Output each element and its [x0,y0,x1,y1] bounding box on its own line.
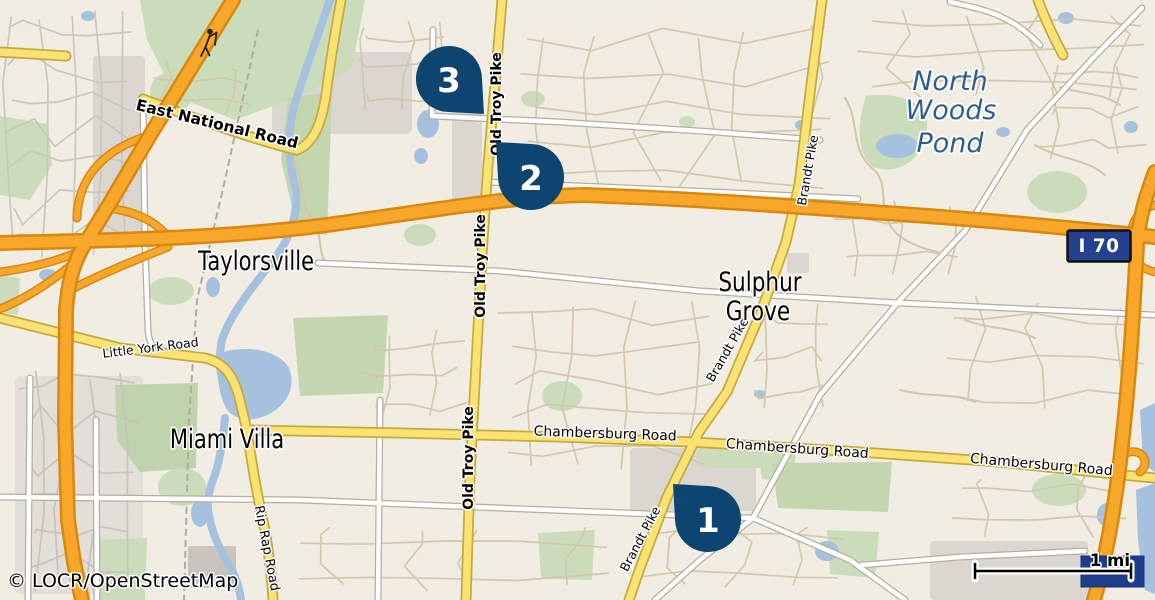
north-woods-pond-water [876,134,918,158]
map-canvas[interactable]: East National Road Old Troy Pike Old Tro… [0,0,1155,600]
place-label-grove: Grove [726,295,790,327]
water-label-pond: Pond [916,128,984,159]
road-label-old-troy-pike-1: Old Troy Pike [489,52,505,156]
place-label-sulphur: Sulphur [718,266,802,298]
water-label-woods: Woods [906,95,997,126]
water-label-north: North [912,66,988,97]
pin-3-number: 3 [437,61,461,101]
place-label-taylorsville: Taylorsville [197,245,314,276]
place-label-miami-villa: Miami Villa [170,423,284,454]
pin-2-number: 2 [519,159,543,199]
scale-label: 1 mi [1090,551,1130,570]
i70-shield-label: I 70 [1078,236,1119,257]
pin-1-number: 1 [696,501,720,541]
road-label-old-troy-pike-3: Old Troy Pike [461,406,477,510]
i70-shield: I 70 [1068,231,1131,262]
road-label-old-troy-pike-2: Old Troy Pike [473,214,489,318]
attribution-text: © LOCR/OpenStreetMap [7,570,238,592]
map-container: East National Road Old Troy Pike Old Tro… [0,0,1155,600]
